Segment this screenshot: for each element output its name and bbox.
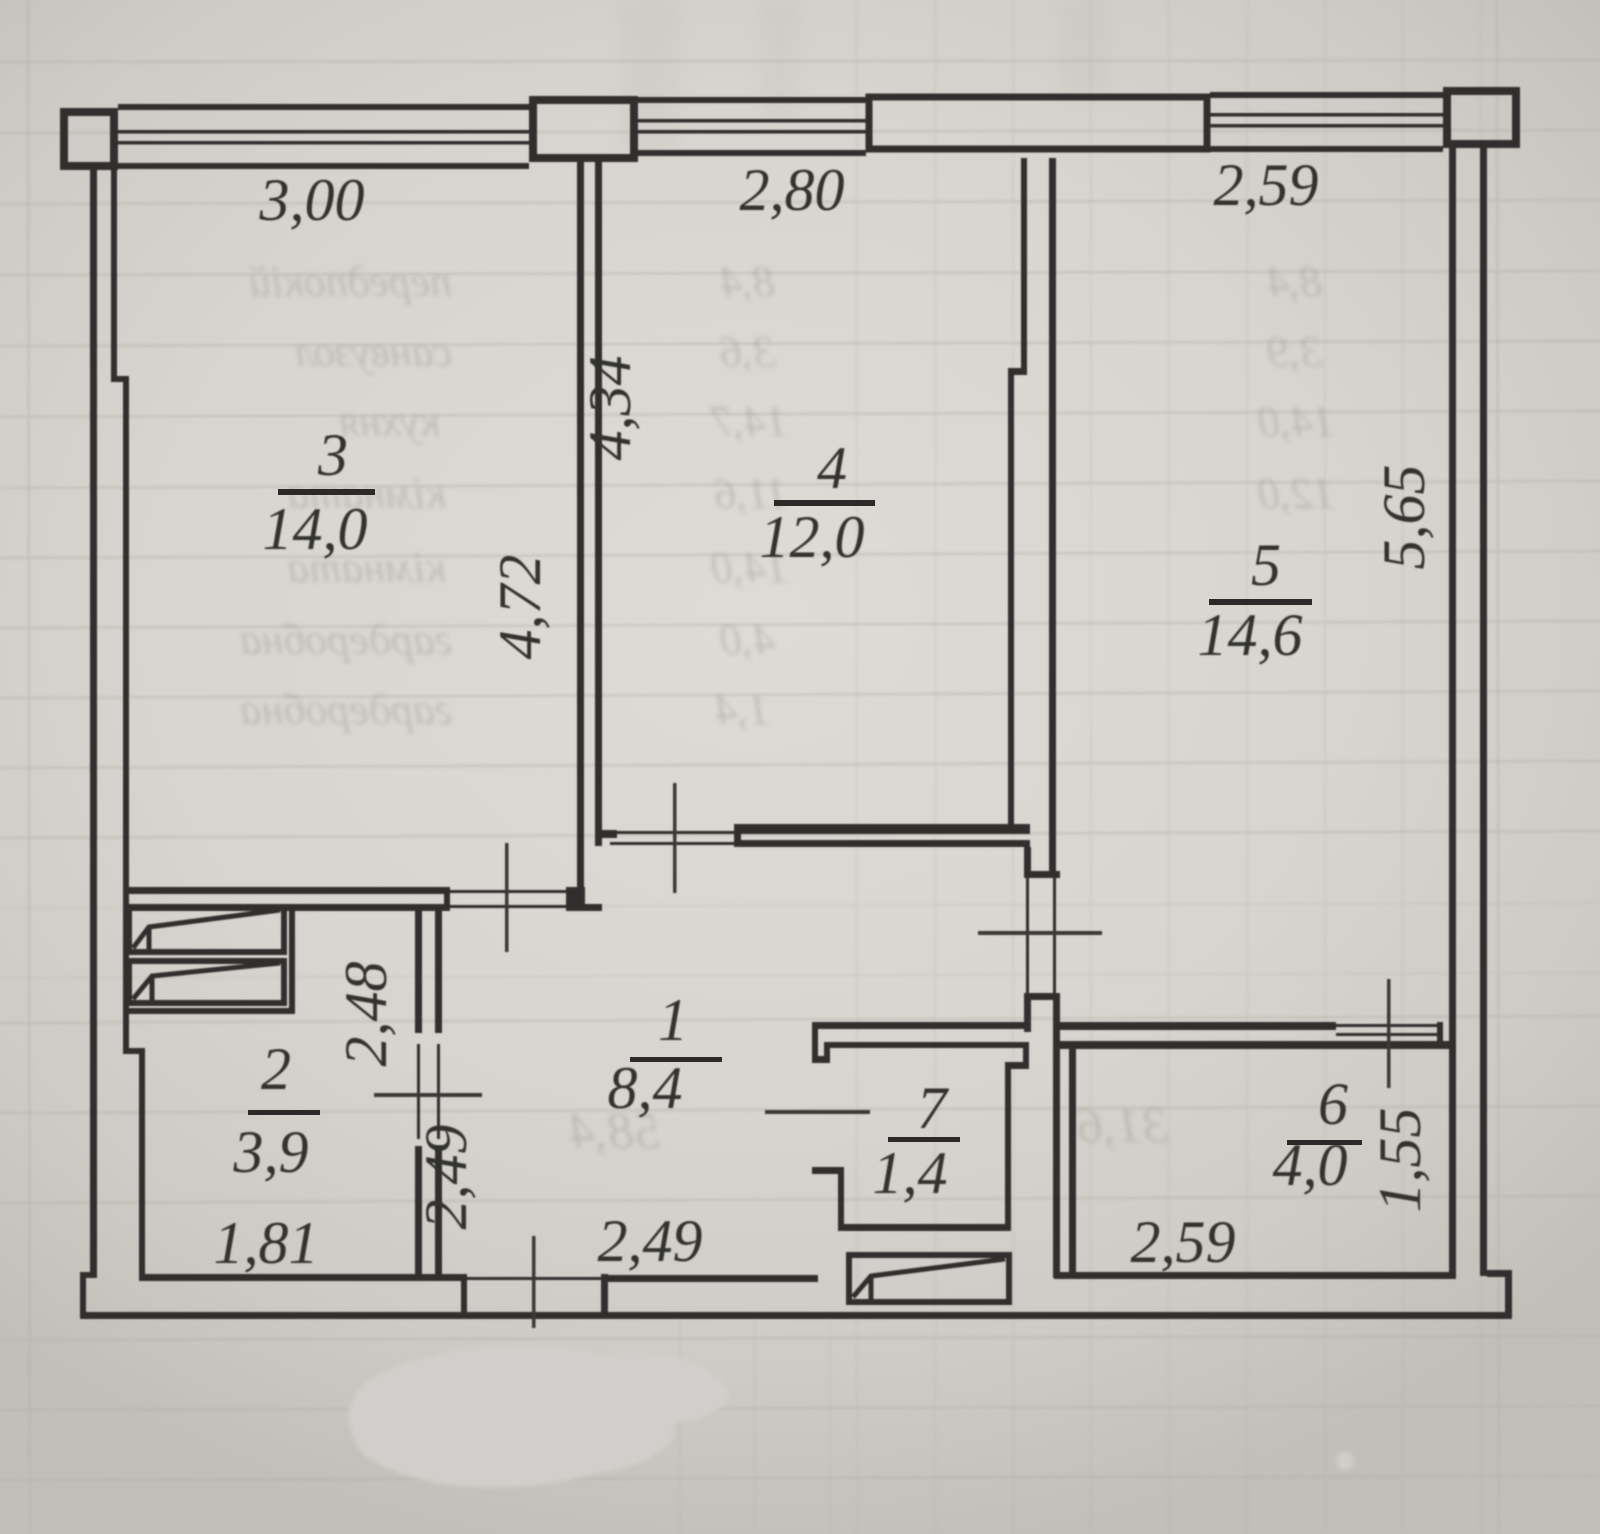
svg-text:31,6: 31,6 (1077, 1097, 1169, 1154)
svg-text:14,7: 14,7 (709, 397, 788, 446)
svg-text:кухня: кухня (339, 397, 440, 446)
svg-text:2,49: 2,49 (413, 1125, 479, 1230)
svg-text:8,4: 8,4 (608, 1055, 683, 1121)
svg-text:1,81: 1,81 (214, 1210, 319, 1276)
svg-text:2: 2 (261, 1036, 291, 1102)
svg-text:санвузол: санвузол (295, 327, 452, 376)
svg-text:12,0: 12,0 (760, 504, 865, 570)
svg-text:3: 3 (317, 422, 348, 488)
svg-text:3,00: 3,00 (259, 167, 365, 233)
svg-text:6: 6 (1318, 1071, 1348, 1137)
svg-text:4,0: 4,0 (720, 615, 775, 664)
svg-text:3,6: 3,6 (720, 327, 776, 376)
svg-text:2,59: 2,59 (1214, 152, 1319, 218)
svg-text:1,4: 1,4 (873, 1140, 948, 1206)
svg-text:8,4: 8,4 (1267, 257, 1322, 306)
svg-text:гардеробна: гардеробна (240, 685, 452, 734)
svg-text:5,65: 5,65 (1371, 465, 1437, 570)
svg-text:4,72: 4,72 (487, 555, 553, 660)
svg-text:1,55: 1,55 (1367, 1108, 1433, 1213)
svg-text:14,0: 14,0 (1258, 397, 1335, 446)
svg-text:2,59: 2,59 (1131, 1209, 1236, 1275)
svg-text:14,6: 14,6 (1198, 602, 1303, 668)
svg-text:3,9: 3,9 (233, 1119, 309, 1185)
svg-text:14,0: 14,0 (263, 496, 368, 562)
svg-text:7: 7 (917, 1075, 950, 1141)
svg-text:2,49: 2,49 (598, 1208, 703, 1274)
svg-text:гардеробна: гардеробна (240, 615, 452, 664)
svg-text:3,9: 3,9 (1267, 327, 1323, 376)
svg-text:4: 4 (817, 435, 847, 501)
svg-text:4,34: 4,34 (577, 356, 643, 461)
svg-text:1: 1 (658, 987, 688, 1053)
svg-text:12,0: 12,0 (1258, 469, 1335, 518)
svg-text:5: 5 (1251, 532, 1281, 598)
svg-text:2,80: 2,80 (740, 157, 845, 223)
svg-text:8,4: 8,4 (720, 257, 775, 306)
svg-text:1,4: 1,4 (715, 685, 770, 734)
svg-text:2,48: 2,48 (333, 962, 399, 1067)
svg-text:передпокій: передпокій (249, 257, 452, 306)
